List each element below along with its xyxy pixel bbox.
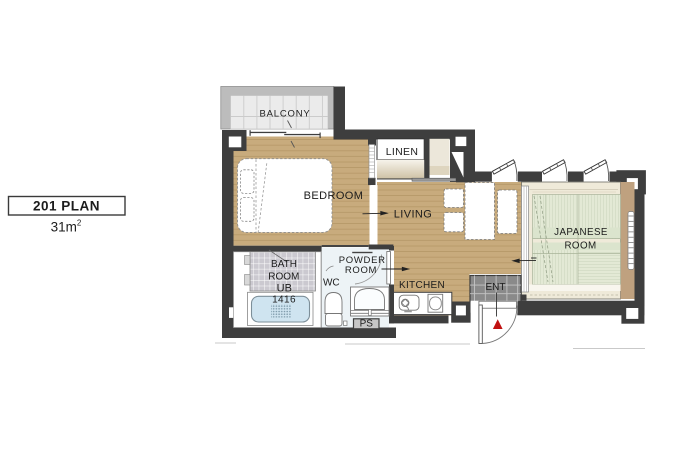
svg-text:WC: WC: [323, 278, 340, 289]
svg-text:PS: PS: [360, 319, 374, 330]
svg-text:LINEN: LINEN: [386, 146, 418, 158]
svg-text:BATH: BATH: [271, 259, 297, 270]
svg-text:ROOM: ROOM: [345, 265, 377, 276]
svg-text:UB: UB: [277, 283, 292, 295]
svg-text:1416: 1416: [272, 294, 296, 305]
svg-text:BEDROOM: BEDROOM: [304, 190, 364, 202]
svg-text:KITCHEN: KITCHEN: [399, 280, 445, 291]
svg-text:201 PLAN: 201 PLAN: [33, 199, 100, 214]
svg-text:JAPANESE: JAPANESE: [554, 227, 608, 238]
svg-text:BALCONY: BALCONY: [259, 109, 310, 120]
svg-text:ROOM: ROOM: [268, 271, 299, 282]
svg-text:ROOM: ROOM: [564, 240, 596, 251]
svg-text:ENT: ENT: [486, 282, 506, 293]
svg-text:LIVING: LIVING: [394, 208, 432, 220]
